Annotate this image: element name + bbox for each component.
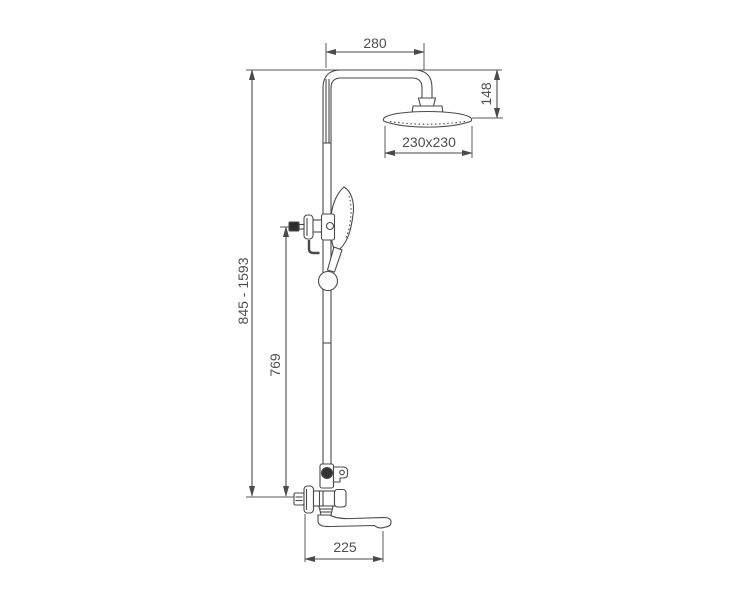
riser-pipe <box>323 70 432 470</box>
dim-label-overall-height: 845 - 1593 <box>235 257 251 324</box>
holder-pivot-screw <box>327 223 334 230</box>
dimension-lines <box>252 52 497 559</box>
tub-spout <box>318 515 391 528</box>
mixer-handle <box>294 493 304 505</box>
mixer-body <box>314 491 335 506</box>
head-connector-nut <box>419 98 436 106</box>
mixer-escutcheon <box>304 486 314 513</box>
technical-drawing-canvas: 280 148 230x230 845 - 1593 769 225 <box>0 0 734 600</box>
dim-label-spout-reach: 225 <box>333 539 357 555</box>
hose-ball-connector <box>319 272 338 291</box>
holder-hook <box>309 240 320 253</box>
diverter-knob <box>322 468 333 479</box>
spout-nut <box>319 506 333 515</box>
dim-label-horizontal-reach: 280 <box>363 35 387 51</box>
holder-tightening-knob <box>289 222 299 231</box>
holder-flange <box>304 215 313 239</box>
dim-label-head-size: 230x230 <box>402 134 456 150</box>
dim-label-head-drop: 148 <box>478 82 494 106</box>
holder-knob-stem <box>299 225 304 230</box>
diverter-bracket-hole <box>340 470 345 475</box>
dim-label-holder-height: 769 <box>267 353 283 377</box>
mixer-end-cap <box>335 490 347 508</box>
shower-column-diagram: 280 148 230x230 845 - 1593 769 225 <box>0 0 734 600</box>
